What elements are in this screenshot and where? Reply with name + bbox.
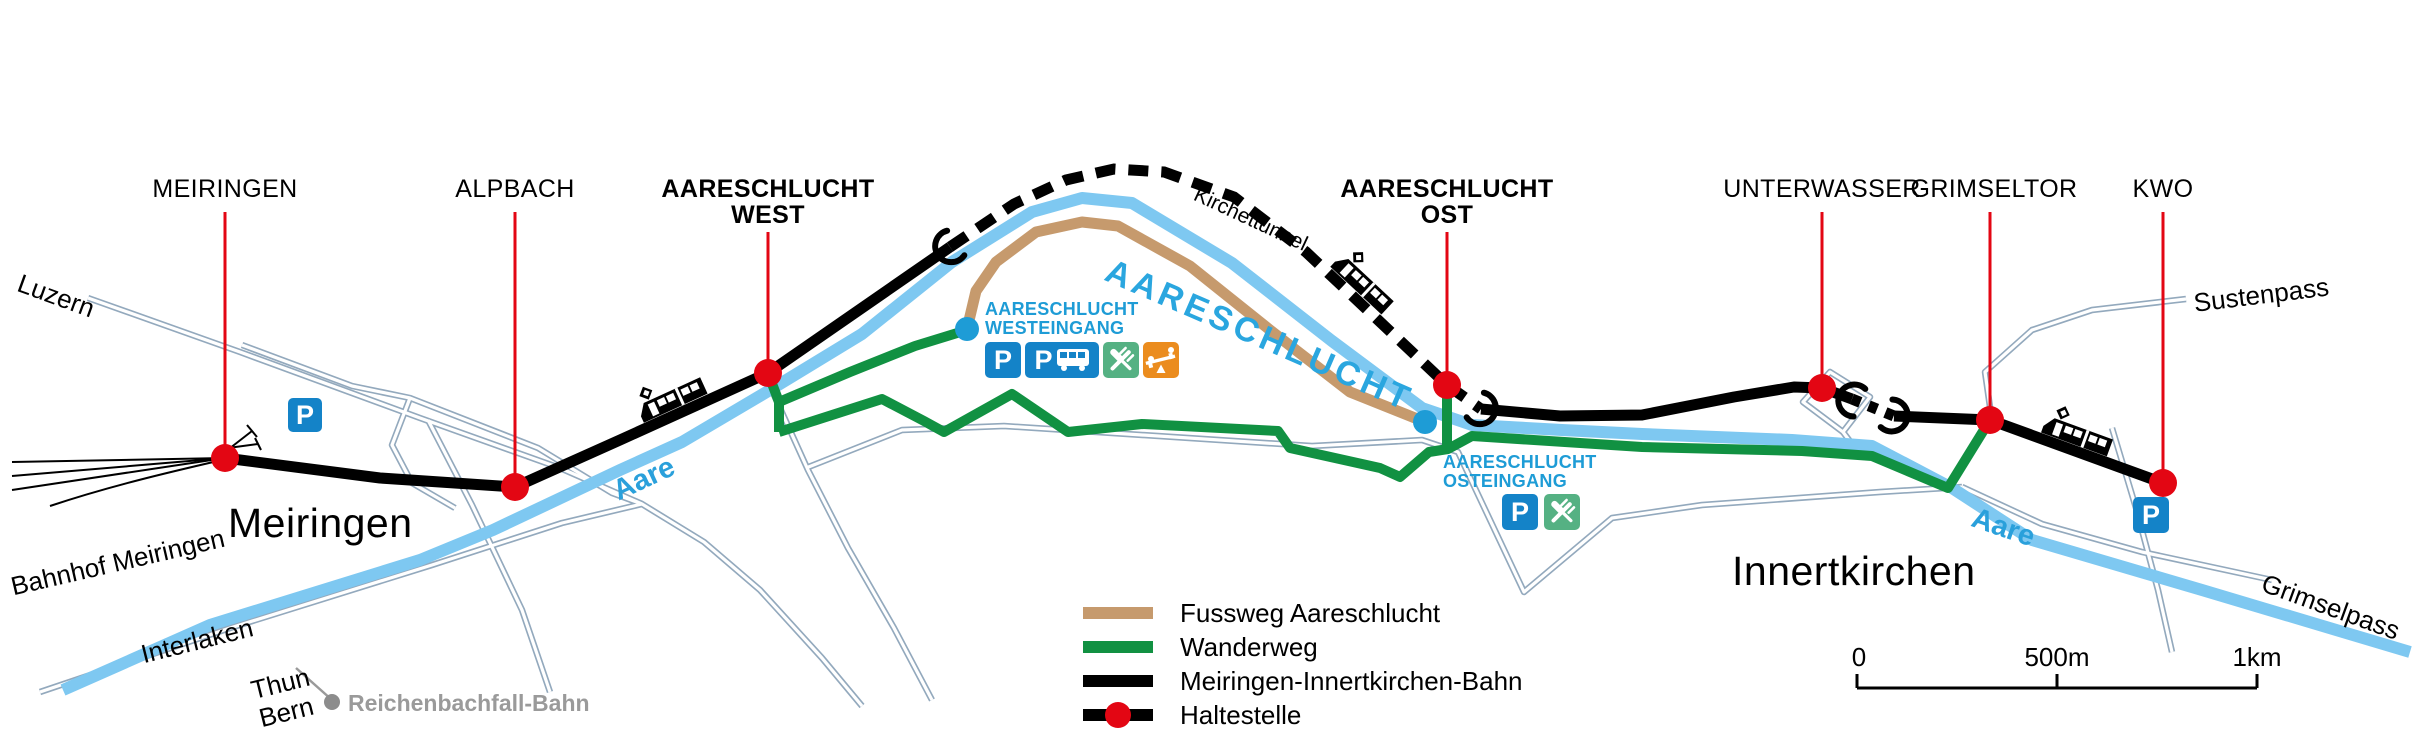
restaurant-icon [1544,494,1580,530]
parking-letter: P [1511,499,1529,526]
west-entrance-label: AARESCHLUCHT WESTEINGANG [985,300,1139,338]
playground-icon [1143,342,1179,378]
bahn-swatch [1083,675,1153,687]
scale-bar [1857,674,2257,688]
station-label-aareschlucht-ost: AARESCHLUCHT OST [1340,176,1553,228]
station-name: MEIRINGEN [152,176,297,202]
east-entrance-line2: OSTEINGANG [1443,472,1597,491]
station-name: AARESCHLUCHT [661,176,874,202]
scale-mid-label: 500m [2024,642,2089,673]
station-name: GRIMSELTOR [1911,176,2078,202]
east-entrance-dot [1413,410,1437,434]
scale-start-label: 0 [1852,642,1866,673]
station-name-line2: WEST [661,202,874,228]
legend-label: Fussweg Aareschlucht [1180,598,1440,628]
station-label-grimseltor: GRIMSELTOR [1911,176,2078,202]
stop-dot-meiringen [211,444,239,472]
legend-label: Haltestelle [1180,700,1301,730]
legend-label: Wanderweg [1180,632,1318,662]
train-icons [630,243,2118,457]
parking-letter: P [296,402,314,429]
stop-dot-kwo [2149,469,2177,497]
east-entrance-line1: AARESCHLUCHT [1443,453,1597,472]
legend-label: Meiringen-Innertkirchen-Bahn [1180,666,1523,696]
station-label-unterwasser: UNTERWASSER [1723,176,1920,202]
parking-letter: P [1034,347,1052,374]
station-name: AARESCHLUCHT [1340,176,1553,202]
parking-icon: P [2133,497,2169,533]
west-entrance-line1: AARESCHLUCHT [985,300,1139,319]
station-label-alpbach: ALPBACH [455,176,575,202]
parking-letter: P [2142,502,2160,529]
seesaw-glyph [1143,342,1179,378]
west-entrance-dot [955,317,979,341]
station-name-line2: OST [1340,202,1553,228]
stop-dot-alpbach [501,473,529,501]
station-name: UNTERWASSER [1723,176,1920,202]
haltestelle-dot-icon [1105,702,1131,728]
stop-dot-unterwasser [1808,374,1836,402]
stop-dot-grimseltor [1976,406,2004,434]
station-name: ALPBACH [455,176,575,202]
parking-icon: P [985,342,1021,378]
fussweg-swatch [1083,607,1153,619]
park-and-ride-bus-icon: P [1025,342,1099,378]
parking-letter: P [994,347,1012,374]
station-label-meiringen: MEIRINGEN [152,176,297,202]
aareschlucht-transit-map: MEIRINGEN ALPBACH AARESCHLUCHT WEST AARE… [0,0,2412,746]
bus-icon [1056,347,1090,373]
stop-dot-aareschlucht-west [754,359,782,387]
fork-knife-glyph [1544,494,1580,530]
wanderweg-swatch [1083,641,1153,653]
scale-end-label: 1km [2232,642,2281,673]
parking-icon: P [288,398,322,432]
west-entrance-line2: WESTEINGANG [985,319,1139,338]
innertkirchen-town-label: Innertkirchen [1732,548,1976,595]
reichenbachfall-bahn-label: Reichenbachfall-Bahn [348,690,590,717]
station-label-aareschlucht-west: AARESCHLUCHT WEST [661,176,874,228]
parking-icon: P [1502,494,1538,530]
stop-dot-aareschlucht-ost [1433,371,1461,399]
restaurant-icon [1103,342,1139,378]
station-name: KWO [2133,176,2194,202]
station-label-kwo: KWO [2133,176,2194,202]
fork-knife-glyph [1103,342,1139,378]
meiringen-town-label: Meiringen [228,500,413,547]
east-entrance-label: AARESCHLUCHT OSTEINGANG [1443,453,1597,491]
reichenbach-dot [324,694,340,710]
